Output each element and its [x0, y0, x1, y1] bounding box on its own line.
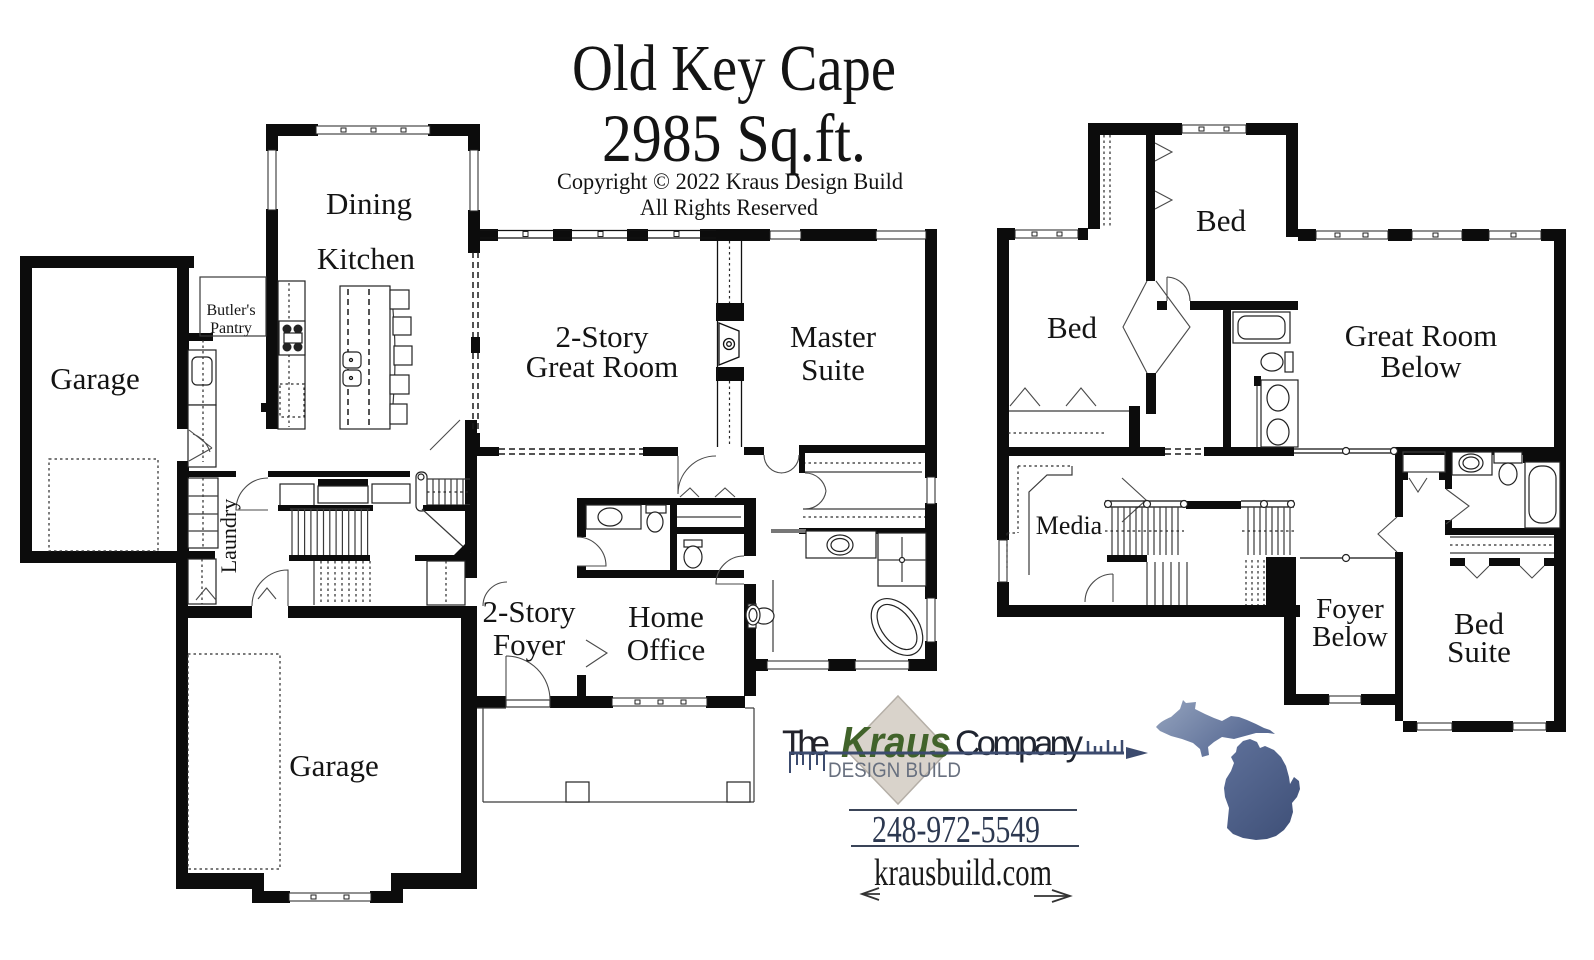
svg-text:Garage: Garage	[289, 748, 379, 783]
svg-text:Great Room: Great Room	[1345, 318, 1497, 353]
svg-text:248-972-5549: 248-972-5549	[872, 809, 1040, 851]
svg-text:Bed: Bed	[1047, 310, 1097, 345]
svg-text:2-Story: 2-Story	[483, 594, 577, 629]
svg-text:DESIGN BUILD: DESIGN BUILD	[828, 759, 961, 782]
svg-text:Below: Below	[1381, 349, 1463, 384]
svg-text:Copyright © 2022 Kraus Design: Copyright © 2022 Kraus Design Build	[557, 169, 903, 194]
svg-text:Dining: Dining	[326, 186, 412, 221]
svg-text:Master: Master	[790, 319, 877, 354]
svg-text:Bed: Bed	[1196, 203, 1246, 238]
svg-text:Suite: Suite	[1447, 634, 1511, 669]
svg-text:Old Key Cape: Old Key Cape	[572, 32, 896, 105]
svg-text:Great Room: Great Room	[526, 349, 678, 384]
svg-text:Company: Company	[955, 724, 1084, 763]
svg-text:Kitchen: Kitchen	[317, 241, 416, 276]
svg-text:Butler's: Butler's	[206, 302, 255, 319]
svg-text:Laundry: Laundry	[216, 499, 241, 574]
svg-text:Pantry: Pantry	[210, 320, 252, 337]
svg-text:2985 Sq.ft.: 2985 Sq.ft.	[602, 100, 866, 176]
svg-text:Garage: Garage	[50, 361, 140, 396]
svg-text:Below: Below	[1312, 621, 1388, 653]
svg-text:All Rights Reserved: All Rights Reserved	[640, 195, 818, 220]
svg-text:Home: Home	[628, 599, 704, 634]
svg-text:Foyer: Foyer	[493, 627, 566, 662]
svg-text:Office: Office	[627, 632, 706, 667]
svg-text:krausbuild.com: krausbuild.com	[874, 852, 1052, 894]
svg-text:Suite: Suite	[801, 352, 865, 387]
svg-text:Media: Media	[1036, 511, 1103, 540]
